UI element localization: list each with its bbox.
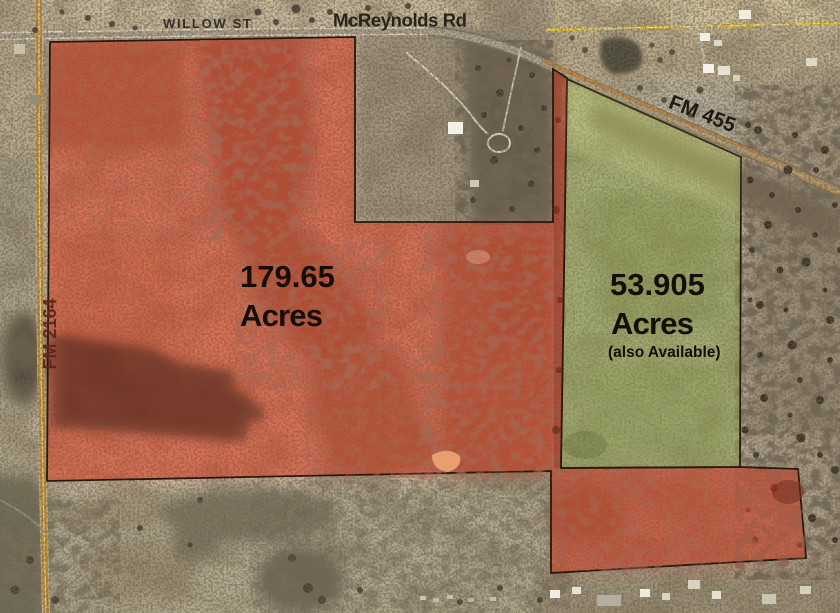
svg-text:Acres: Acres — [240, 298, 322, 333]
svg-text:WILLOW ST: WILLOW ST — [163, 16, 253, 31]
svg-text:179.65: 179.65 — [240, 259, 335, 294]
svg-text:McReynolds Rd: McReynolds Rd — [333, 10, 467, 31]
svg-text:(also Available): (also Available) — [608, 344, 721, 361]
svg-text:53.905: 53.905 — [610, 267, 705, 302]
svg-text:Acres: Acres — [611, 306, 693, 341]
svg-text:FM 2164: FM 2164 — [40, 298, 60, 369]
